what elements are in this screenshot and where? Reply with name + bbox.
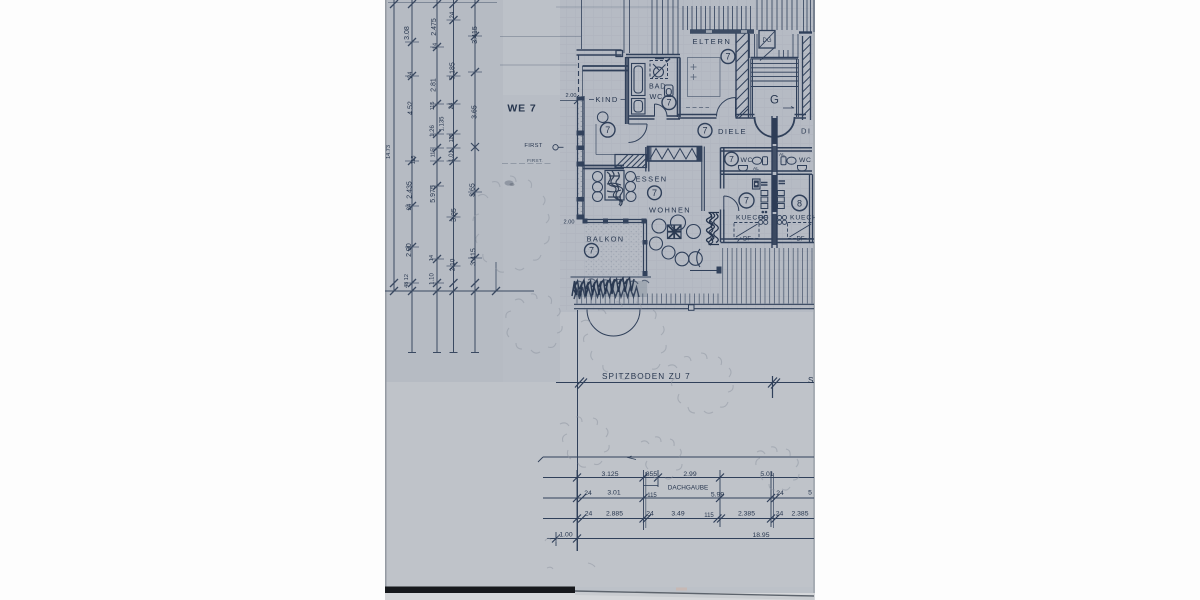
svg-text:7: 7 <box>725 52 730 62</box>
svg-text:2.885: 2.885 <box>606 511 623 518</box>
svg-text:5.975: 5.975 <box>430 185 437 203</box>
svg-text:- 24: - 24 <box>450 11 456 22</box>
svg-text:SPITZBODEN ZU 7: SPITZBODEN ZU 7 <box>602 372 691 381</box>
svg-text:5.01: 5.01 <box>760 471 773 478</box>
svg-text:ESSEN: ESSEN <box>635 175 667 184</box>
svg-text:DI: DI <box>801 127 811 136</box>
svg-text:18.95: 18.95 <box>752 532 769 539</box>
svg-text:7: 7 <box>666 98 671 108</box>
svg-text:115: 115 <box>430 149 436 158</box>
svg-text:24: 24 <box>776 511 784 518</box>
svg-text:1.10: 1.10 <box>430 273 436 285</box>
svg-text:14: 14 <box>432 43 438 49</box>
svg-text:WC: WC <box>650 92 664 101</box>
svg-text:2.10: 2.10 <box>450 258 457 271</box>
svg-text:WC: WC <box>799 157 812 164</box>
svg-text:7: 7 <box>652 188 657 198</box>
svg-text:3.415: 3.415 <box>472 26 479 44</box>
svg-text:14.73: 14.73 <box>386 145 392 159</box>
svg-text:24: 24 <box>646 511 654 518</box>
svg-text:3.65: 3.65 <box>471 105 478 119</box>
svg-text:2.81: 2.81 <box>430 78 437 92</box>
svg-text:5.99: 5.99 <box>711 492 724 499</box>
svg-text:115: 115 <box>411 156 417 165</box>
svg-text:WE 7: WE 7 <box>507 103 536 115</box>
svg-text:BALKON: BALKON <box>587 235 625 244</box>
svg-text:3.125: 3.125 <box>601 471 618 478</box>
svg-text:115: 115 <box>430 102 436 111</box>
svg-text:2.435: 2.435 <box>406 181 413 199</box>
svg-text:115: 115 <box>449 134 455 143</box>
svg-text:2.475: 2.475 <box>431 18 438 36</box>
svg-text:7: 7 <box>702 126 707 136</box>
svg-text:115: 115 <box>647 493 657 499</box>
svg-text:1.01: 1.01 <box>449 150 455 162</box>
svg-text:WC: WC <box>741 157 754 164</box>
svg-text:7: 7 <box>729 154 734 164</box>
svg-text:7: 7 <box>589 246 594 256</box>
svg-text:AL: AL <box>753 166 759 172</box>
svg-text:1.00: 1.00 <box>559 532 572 539</box>
svg-text:KIND: KIND <box>595 95 618 104</box>
svg-text:3.65: 3.65 <box>469 183 476 197</box>
svg-text:5.185: 5.185 <box>449 62 456 80</box>
svg-text:24: 24 <box>449 102 455 109</box>
svg-text:3.415: 3.415 <box>470 248 477 266</box>
svg-text:5: 5 <box>808 490 812 497</box>
svg-text:8: 8 <box>797 198 802 208</box>
svg-text:DACHGAUBE: DACHGAUBE <box>668 485 708 492</box>
svg-text:ELTERN: ELTERN <box>693 37 732 46</box>
svg-text:G: G <box>770 95 779 107</box>
svg-text:2.00: 2.00 <box>566 93 577 99</box>
svg-text:1.135: 1.135 <box>440 116 446 132</box>
svg-text:.855: .855 <box>644 471 657 478</box>
svg-text:48 12: 48 12 <box>404 274 410 288</box>
svg-text:24: 24 <box>776 490 784 497</box>
svg-text:4.52: 4.52 <box>407 101 414 115</box>
svg-text:7: 7 <box>744 196 749 206</box>
svg-text:24: 24 <box>585 511 593 518</box>
svg-text:2.385: 2.385 <box>738 511 755 518</box>
svg-text:24: 24 <box>584 490 592 497</box>
svg-text:24: 24 <box>408 71 414 78</box>
svg-text:WOHNEN: WOHNEN <box>649 206 691 215</box>
svg-text:AL: AL <box>779 152 785 158</box>
svg-text:3.85: 3.85 <box>451 208 458 222</box>
svg-text:2.00: 2.00 <box>564 220 575 226</box>
svg-text:14: 14 <box>429 255 435 261</box>
svg-text:2.385: 2.385 <box>791 511 808 518</box>
svg-text:7: 7 <box>605 125 610 135</box>
svg-text:FIRST: FIRST <box>524 143 542 149</box>
svg-text:FIRST.: FIRST. <box>527 158 543 164</box>
svg-text:1.26: 1.26 <box>430 125 436 137</box>
svg-text:2.99: 2.99 <box>683 471 696 478</box>
svg-text:2.90: 2.90 <box>406 243 413 257</box>
svg-text:BAD: BAD <box>649 82 666 91</box>
svg-text:DIELE: DIELE <box>718 127 747 136</box>
svg-text:3.08: 3.08 <box>404 26 411 40</box>
svg-text:3.01: 3.01 <box>607 490 620 497</box>
svg-text:24: 24 <box>407 203 413 210</box>
svg-text:115: 115 <box>704 513 714 519</box>
svg-text:3.49: 3.49 <box>671 511 684 518</box>
